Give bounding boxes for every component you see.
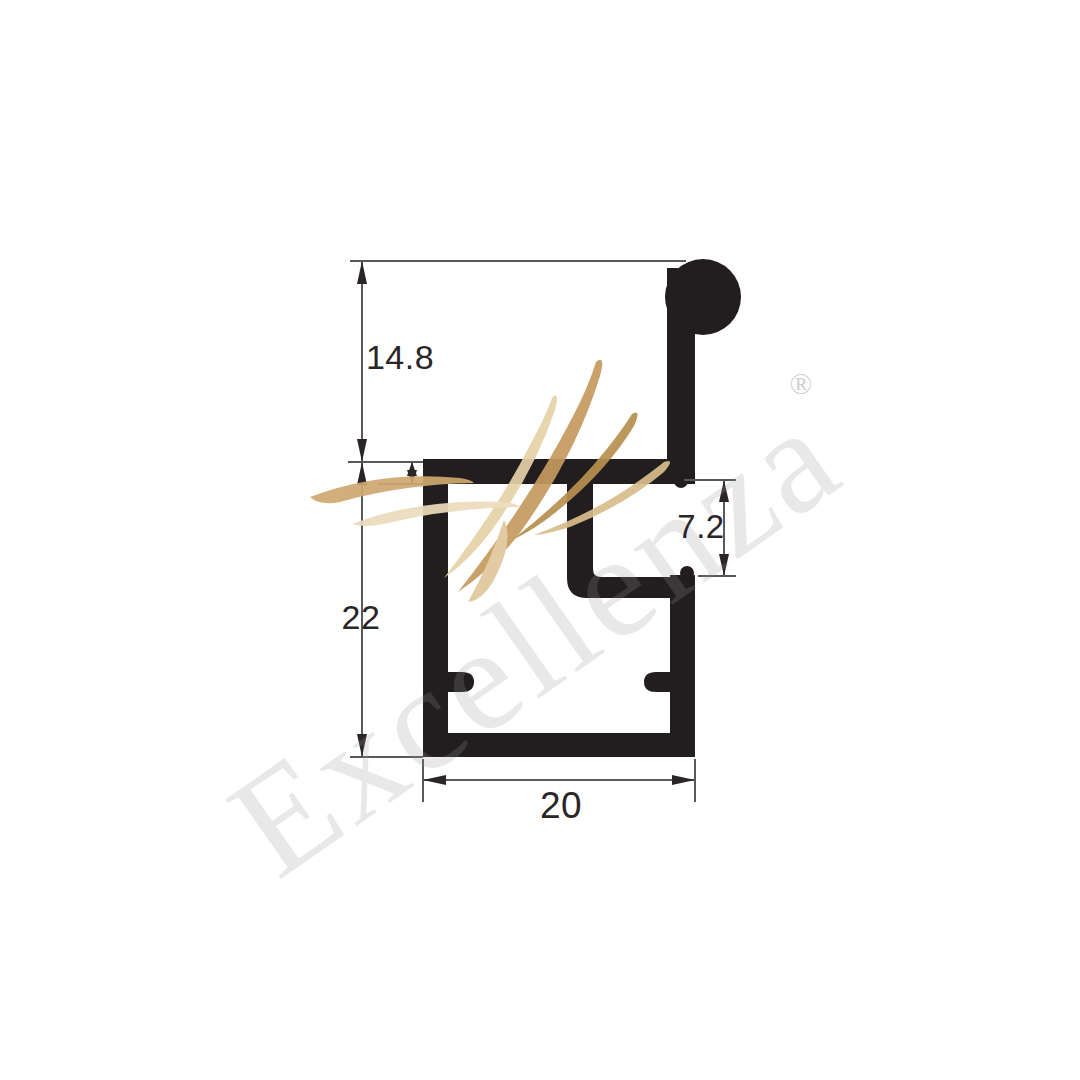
- feather-strand-icon: [458, 360, 602, 592]
- feather-strand-icon: [310, 476, 474, 503]
- dimension-label-14-8: 14.8: [366, 338, 434, 377]
- dimension-label-20: 20: [540, 785, 582, 827]
- watermark-feather-flourish: [0, 0, 1080, 1080]
- technical-drawing-canvas: Excellenza ® 14.8 22 7.2 20: [0, 0, 1080, 1080]
- dimension-label-22: 22: [342, 598, 381, 637]
- dimension-label-7-2: 7.2: [677, 508, 724, 546]
